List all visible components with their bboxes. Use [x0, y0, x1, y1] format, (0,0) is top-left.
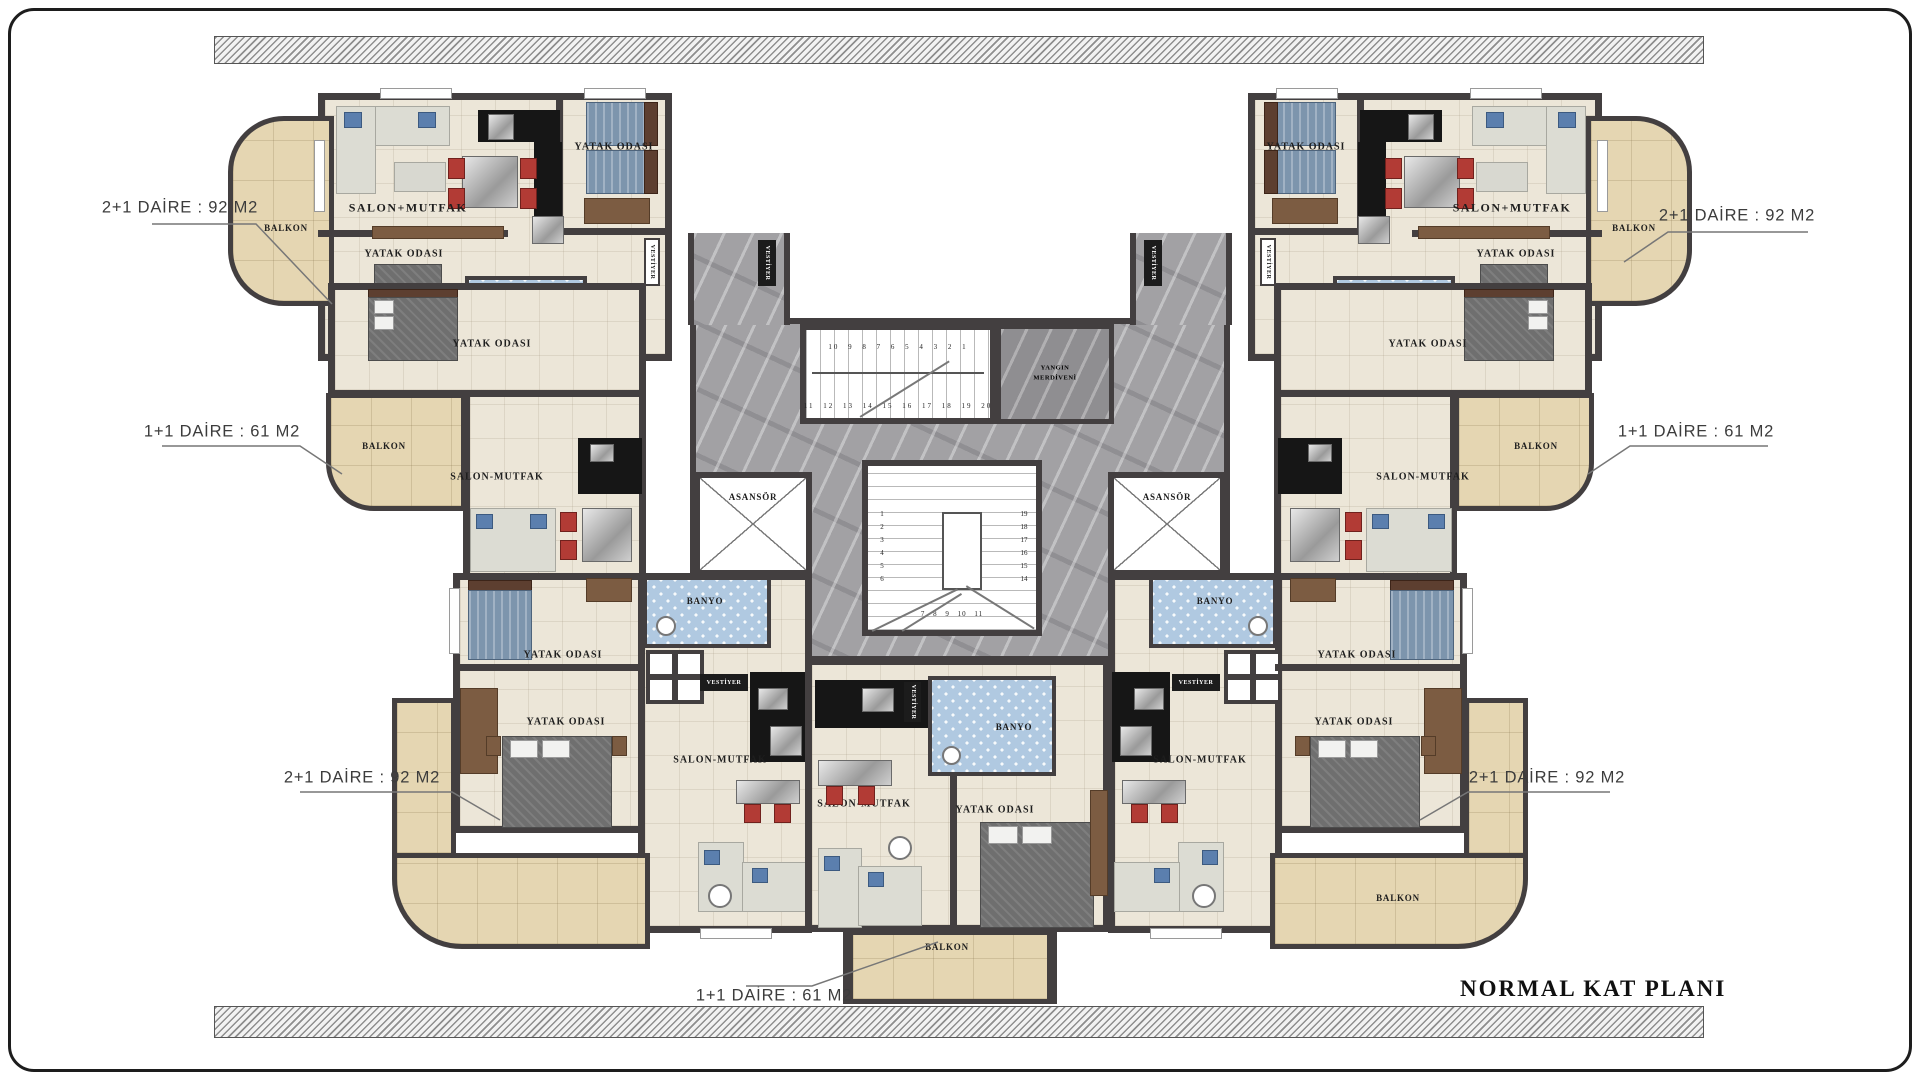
side-table — [888, 836, 912, 860]
double-bed — [1390, 590, 1454, 660]
dresser — [1290, 578, 1336, 602]
room-label: YATAK ODASI — [1389, 339, 1468, 350]
tv-unit — [372, 226, 504, 239]
pillow — [1022, 826, 1052, 844]
wardrobe-label: VESTİYER — [707, 680, 742, 686]
wall — [1248, 228, 1364, 235]
twin-bed — [586, 102, 648, 146]
wardrobe-label: VESTİYER — [1179, 680, 1214, 686]
fridge — [532, 216, 564, 244]
balcony-label: BALKON — [264, 223, 308, 233]
wardrobe-label: VESTİYER — [1265, 245, 1271, 280]
fridge — [1358, 216, 1390, 244]
window — [314, 140, 325, 212]
chair — [1385, 188, 1402, 209]
dining-table — [1290, 508, 1340, 562]
apartment-label-mid-right: 1+1 DAİRE : 61 M2 — [1618, 423, 1774, 442]
chair — [1345, 540, 1362, 560]
window — [449, 588, 460, 654]
window — [380, 88, 452, 99]
nightstand — [1421, 736, 1436, 756]
chair — [520, 158, 537, 179]
room-label: BANYO — [687, 596, 724, 606]
wall — [1275, 664, 1467, 671]
pillow — [1350, 740, 1378, 758]
coffee-table — [1476, 162, 1528, 192]
pillow — [344, 112, 362, 128]
pillow — [374, 316, 394, 330]
room-label: YATAK ODASI — [956, 805, 1035, 816]
balcony-label: BALKON — [925, 942, 969, 952]
room-label: SALON+MUTFAK — [1453, 201, 1572, 216]
wardrobe-label: VESTİYER — [910, 685, 916, 720]
pillow — [1428, 514, 1445, 529]
kitchen-counter — [534, 142, 562, 216]
apartment-label-top-left: 2+1 DAİRE : 92 M2 — [102, 199, 258, 218]
wall — [453, 664, 645, 671]
room-label: YATAK ODASI — [453, 339, 532, 350]
pillow — [1528, 316, 1548, 330]
plan-title: NORMAL KAT PLANI — [1460, 976, 1726, 1002]
pillow — [1486, 112, 1504, 128]
sink — [656, 616, 676, 636]
window — [1276, 88, 1338, 99]
chair — [560, 512, 577, 532]
chair — [826, 786, 843, 805]
wardrobe-label: VESTİYER — [764, 246, 770, 281]
room-label: YATAK ODASI — [1267, 142, 1346, 153]
double-bed — [468, 590, 532, 660]
dresser — [586, 578, 632, 602]
elevator-right — [1108, 472, 1226, 576]
top-stair-numbers-row2: 11 12 13 14 15 16 17 18 19 20 — [804, 402, 993, 410]
pillow — [752, 868, 768, 883]
chair — [560, 540, 577, 560]
stove — [1120, 726, 1152, 756]
chair — [1457, 158, 1474, 179]
room-label: YATAK ODASI — [524, 650, 603, 661]
nightstand — [1295, 736, 1310, 756]
site-hatch-bottom — [214, 1006, 1704, 1038]
window — [1470, 88, 1542, 99]
tv-unit — [1418, 226, 1550, 239]
pillow — [530, 514, 547, 529]
pillow — [1372, 514, 1389, 529]
room-label: BANYO — [996, 722, 1033, 732]
room-label: SALON-MUTFAK — [450, 472, 543, 483]
dining-table — [1404, 156, 1460, 208]
apartment-label-bottom-left: 2+1 DAİRE : 92 M2 — [284, 769, 440, 788]
room-label: YATAK ODASI — [1477, 249, 1556, 260]
balcony-mid-left — [326, 393, 466, 511]
pillow — [510, 740, 538, 758]
apartment-label-top-right: 2+1 DAİRE : 92 M2 — [1659, 207, 1815, 226]
pillow — [868, 872, 884, 887]
site-hatch-top — [214, 36, 1704, 64]
dining-table — [736, 780, 800, 804]
apartment-label-bottom-center: 1+1 DAİRE : 61 M2 — [696, 987, 852, 1006]
stove — [1408, 114, 1434, 140]
elevator-left-label: ASANSÖR — [729, 492, 778, 502]
sofa — [1114, 862, 1180, 912]
headboard — [644, 102, 658, 146]
chair — [1345, 512, 1362, 532]
dining-table — [582, 508, 632, 562]
pillow — [988, 826, 1018, 844]
side-table — [1192, 884, 1216, 908]
dresser — [1272, 198, 1338, 224]
balcony-label: BALKON — [362, 441, 406, 451]
room-label: SALON-MUTFAK — [673, 755, 766, 766]
stair-newel — [942, 512, 982, 590]
pillow — [476, 514, 493, 529]
pillow — [1202, 850, 1218, 865]
dining-table — [818, 760, 892, 786]
wardrobe — [1424, 688, 1462, 774]
room-label: YATAK ODASI — [1315, 717, 1394, 728]
floor-plan-page: 10 9 8 7 6 5 4 3 2 1 11 12 13 14 15 16 1… — [0, 0, 1920, 1080]
sink — [758, 688, 788, 710]
apartment-label-mid-left: 1+1 DAİRE : 61 M2 — [144, 423, 300, 442]
window — [584, 88, 646, 99]
top-stair-numbers-row1: 10 9 8 7 6 5 4 3 2 1 — [828, 343, 967, 351]
room-label: SALON-MUTFAK — [1376, 472, 1469, 483]
headboard — [644, 150, 658, 194]
balcony-mid-right — [1454, 393, 1594, 511]
room-label: BANYO — [1197, 596, 1234, 606]
sink — [1308, 444, 1332, 462]
dining-table — [462, 156, 518, 208]
top-stair-divider — [812, 372, 984, 374]
pillow — [418, 112, 436, 128]
twin-bed — [1274, 102, 1336, 146]
dresser — [584, 198, 650, 224]
twin-bed — [586, 150, 648, 194]
sink — [590, 444, 614, 462]
shaft — [646, 650, 704, 704]
wall — [556, 228, 672, 235]
main-stair-left-numbers: 1 2 3 4 5 6 — [880, 508, 884, 586]
chair — [774, 804, 791, 823]
wall — [950, 776, 957, 932]
window — [1597, 140, 1608, 212]
sink — [1134, 688, 1164, 710]
pillow — [1528, 300, 1548, 314]
main-stair-right-numbers: 19 18 17 16 15 14 — [1021, 508, 1028, 586]
room-label: SALON-MUTFAK — [1153, 755, 1246, 766]
room-label: SALON+MUTFAK — [349, 201, 468, 216]
elevator-left — [694, 472, 812, 576]
pillow — [1318, 740, 1346, 758]
chair — [858, 786, 875, 805]
bathroom — [1149, 576, 1277, 648]
elevator-right-label: ASANSÖR — [1143, 492, 1192, 502]
twin-bed — [1274, 150, 1336, 194]
kitchen-counter — [1358, 142, 1386, 216]
stove — [488, 114, 514, 140]
balcony-label: BALKON — [1376, 893, 1420, 903]
sink — [1248, 616, 1268, 636]
chair — [1161, 804, 1178, 823]
pillow — [1154, 868, 1170, 883]
chair — [1385, 158, 1402, 179]
apartment-label-bottom-right: 2+1 DAİRE : 92 M2 — [1469, 769, 1625, 788]
headboard — [1264, 102, 1278, 146]
coffee-table — [394, 162, 446, 192]
wardrobe — [1090, 790, 1108, 896]
wardrobe-label: VESTİYER — [649, 245, 655, 280]
room-label: YATAK ODASI — [365, 249, 444, 260]
fire-escape-label: YANGIN MERDİVENİ — [1030, 364, 1080, 385]
nightstand — [612, 736, 627, 756]
pillow — [704, 850, 720, 865]
wardrobe — [460, 688, 498, 774]
nightstand — [486, 736, 501, 756]
balcony-label: BALKON — [1514, 441, 1558, 451]
chair — [520, 188, 537, 209]
pillow — [542, 740, 570, 758]
chair — [448, 158, 465, 179]
balcony-label: BALKON — [1612, 223, 1656, 233]
bathroom — [643, 576, 771, 648]
window — [1150, 928, 1222, 939]
side-table — [708, 884, 732, 908]
balcony-bottom-left — [392, 853, 650, 949]
chair — [744, 804, 761, 823]
shaft — [1224, 650, 1282, 704]
headboard — [1264, 150, 1278, 194]
stove — [770, 726, 802, 756]
wardrobe-label: VESTİYER — [1150, 246, 1156, 281]
chair — [1131, 804, 1148, 823]
pillow — [374, 300, 394, 314]
room-label: YATAK ODASI — [527, 717, 606, 728]
window — [1462, 588, 1473, 654]
sink — [862, 688, 894, 712]
room-label: YATAK ODASI — [575, 142, 654, 153]
sink — [942, 746, 961, 765]
room-label: YATAK ODASI — [1318, 650, 1397, 661]
dining-table — [1122, 780, 1186, 804]
pillow — [824, 856, 840, 871]
pillow — [1558, 112, 1576, 128]
window — [700, 928, 772, 939]
